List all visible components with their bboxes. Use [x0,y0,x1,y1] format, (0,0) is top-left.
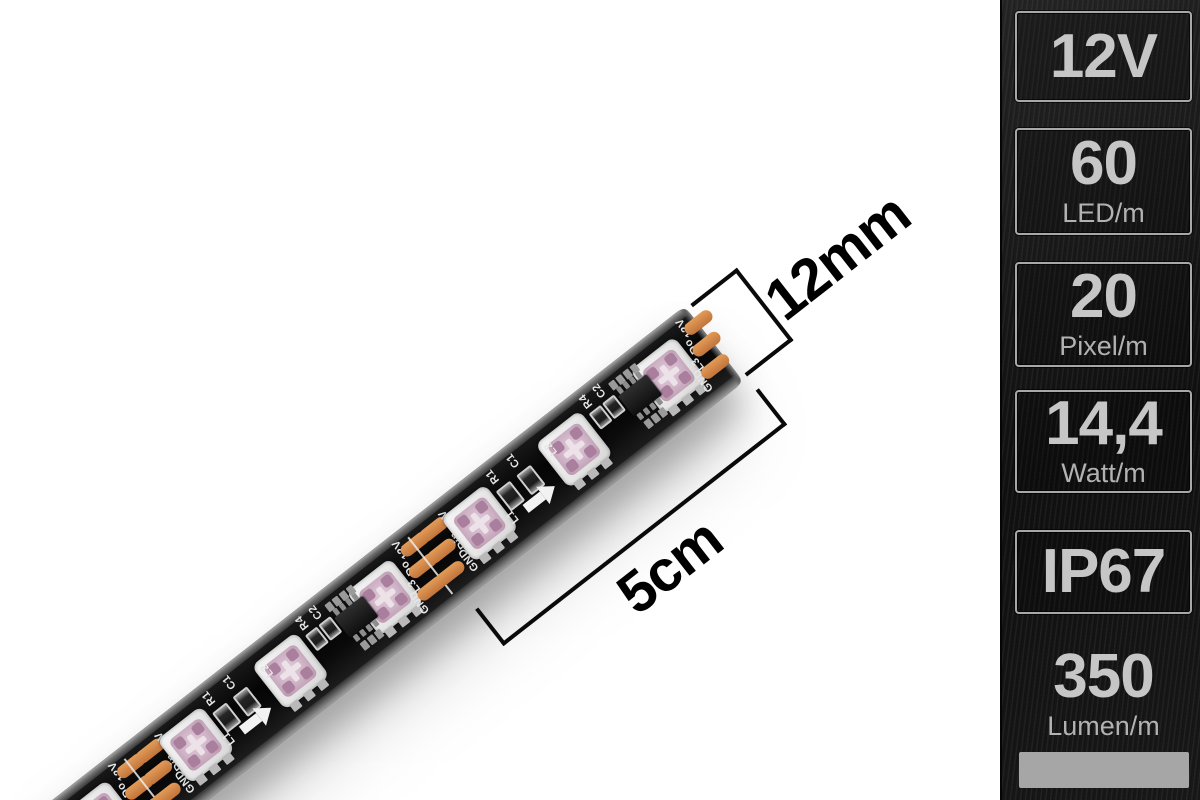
spec-value: IP67 [1042,541,1166,603]
spec-badge-ip-rating: IP67 [1015,530,1192,614]
led-die-contact [474,499,489,514]
led-die-contact [659,384,674,399]
led-die-contact [375,606,390,621]
spec-unit: Pixel/m [1059,331,1148,362]
spec-badge-power: 14,4 Watt/m [1015,390,1192,493]
led-die-contact [204,739,219,754]
led-die-contact [379,573,394,588]
spec-badge-pixel-density: 20 Pixel/m [1015,262,1192,367]
spec-unit: Watt/m [1061,458,1146,489]
dimension-width-group: 12mm [688,101,1009,378]
led-die-contact [583,444,598,459]
spec-badge-voltage: 12V [1015,11,1192,102]
led-die-contact [186,753,201,768]
spec-unit: Lumen/m [1047,711,1160,742]
led-die-contact [96,795,111,800]
dimension-width-label: 12mm [752,180,922,334]
led-die-contact [677,370,692,385]
led-die-contact [281,679,296,694]
led-die-contact [663,352,678,367]
spec-value: 14,4 [1045,393,1162,455]
lumen-bar [1019,752,1189,788]
led-die-contact [565,458,580,473]
led-die-contact [470,532,485,547]
led-die-contact [488,518,503,533]
led-die-contact [190,721,205,736]
spec-value: 12V [1050,26,1157,88]
spec-value: 350 [1053,646,1153,708]
spec-badge-led-density: 60 LED/m [1015,128,1192,235]
spec-value: 60 [1070,133,1137,195]
spec-badge-lumen: 350 Lumen/m [1015,646,1192,788]
spec-unit: LED/m [1062,198,1145,229]
led-die-contact [285,647,300,662]
led-die-contact [569,426,584,441]
spec-sidebar: 12V 60 LED/m 20 Pixel/m 14,4 Watt/m IP67… [1000,0,1200,800]
spec-value: 20 [1070,266,1137,328]
led-die-contact [394,591,409,606]
led-die-contact [299,665,314,680]
product-image-canvas: 12VDinGNDL1L2R1C1R4C212VDoL3GND12VDinGND… [0,0,1200,800]
